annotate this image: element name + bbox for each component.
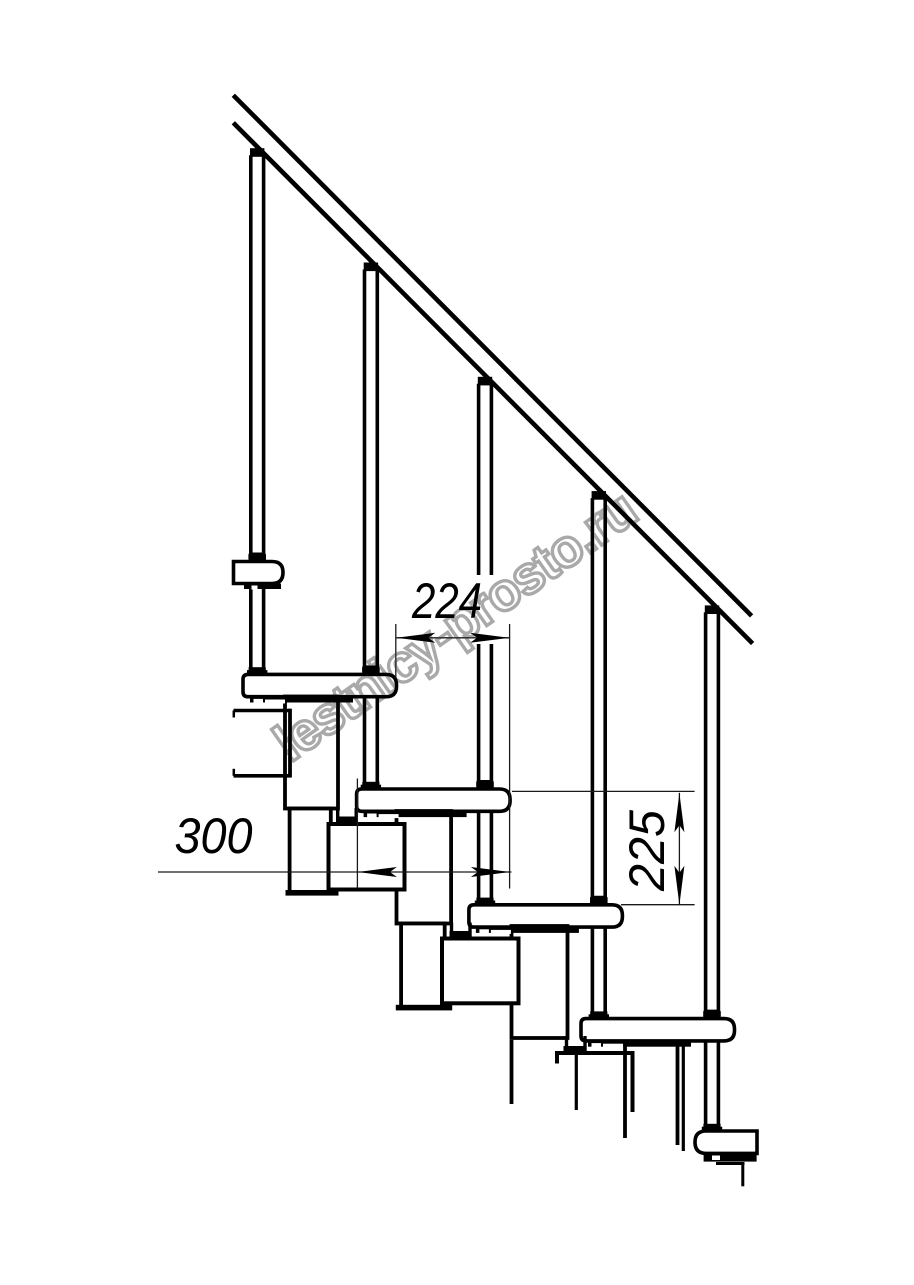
svg-text:300: 300	[175, 808, 253, 864]
svg-text:225: 225	[619, 810, 675, 892]
